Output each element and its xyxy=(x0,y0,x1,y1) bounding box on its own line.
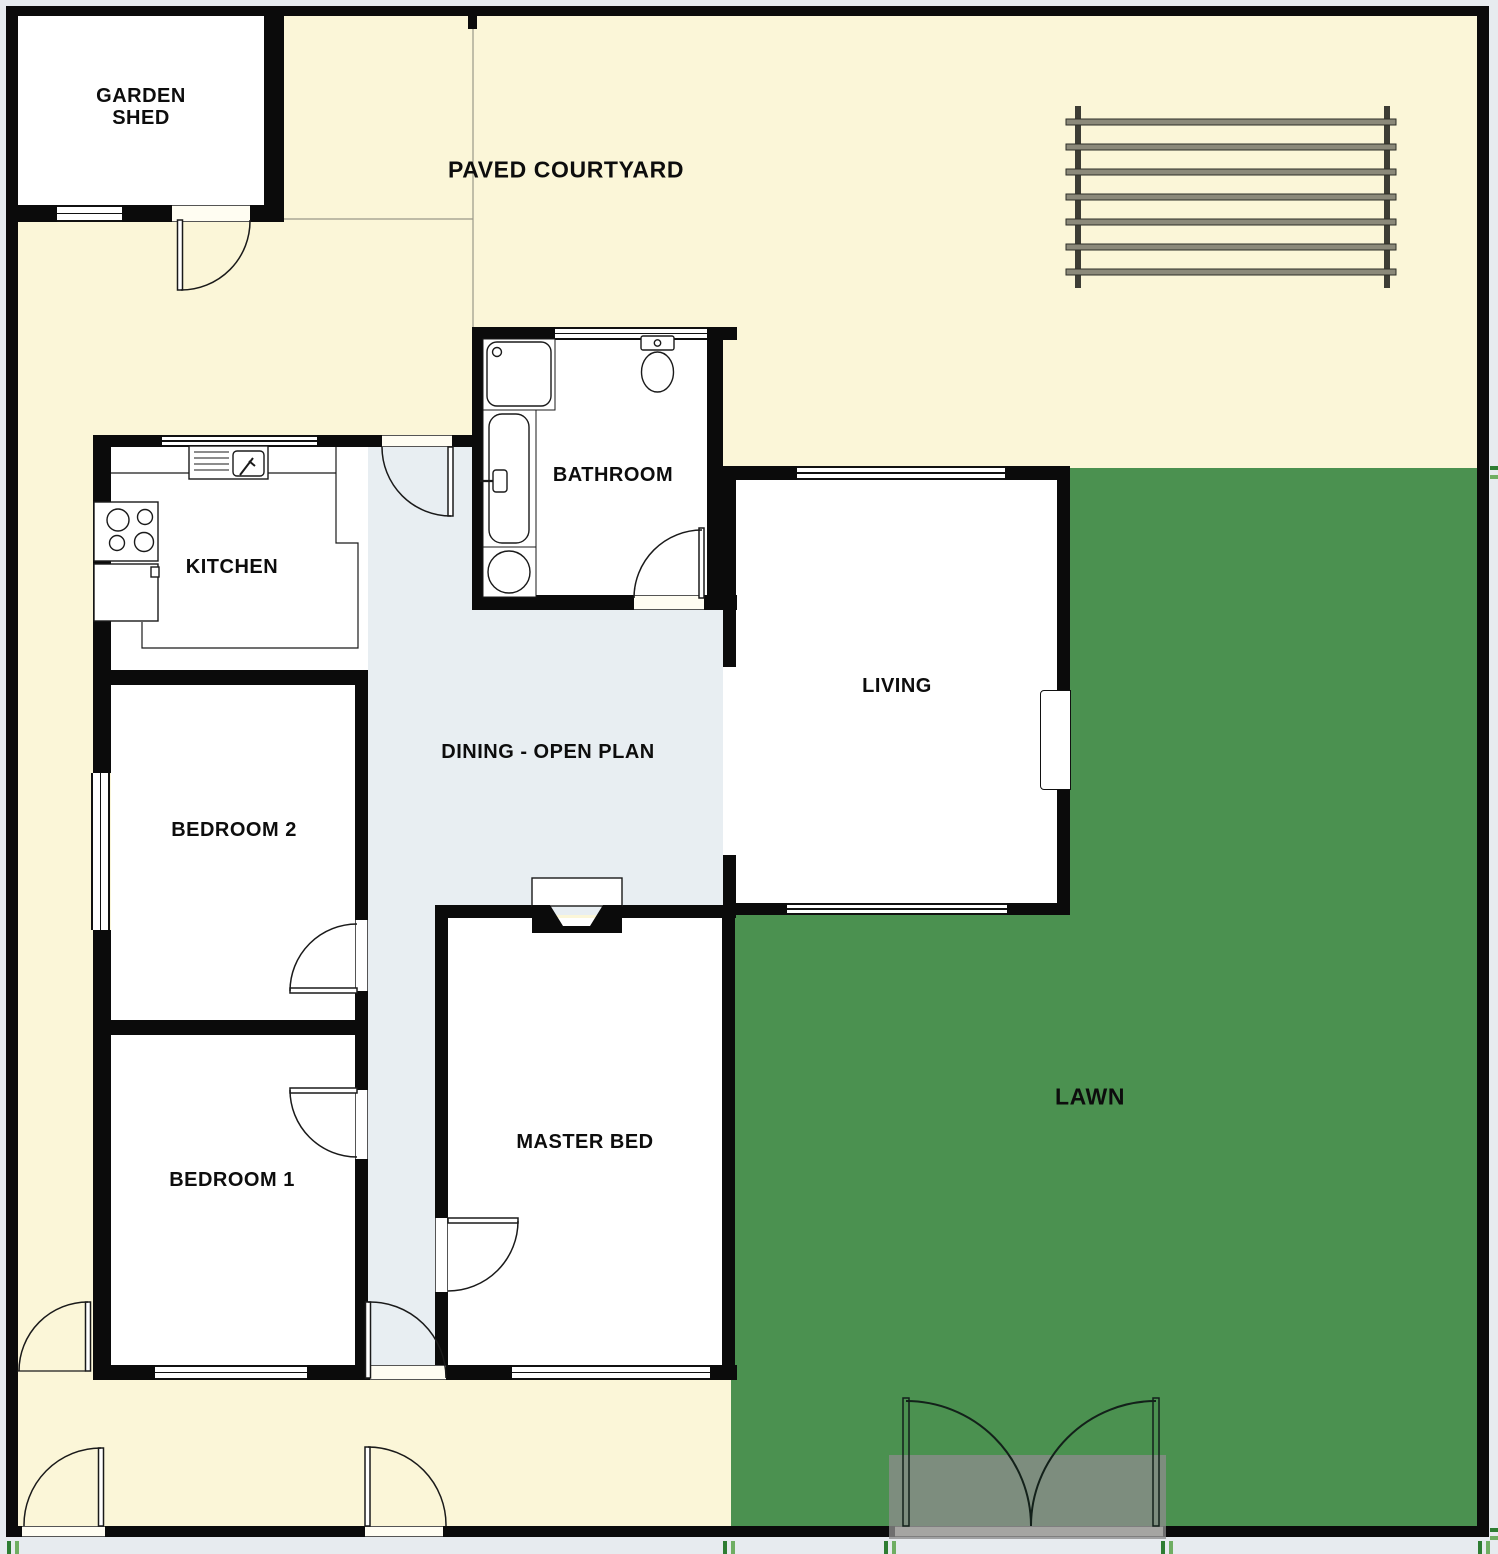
dining-floor xyxy=(368,447,472,610)
floor-plan: GARDEN SHED PAVED COURTYARD BATHROOM KIT… xyxy=(0,0,1498,1554)
bedroom2-wall-right xyxy=(355,685,368,920)
master-wall-top xyxy=(622,905,723,918)
border-wall-left xyxy=(6,6,18,1537)
kitchen-bedroom2-wall xyxy=(93,670,368,685)
dining-label: DINING - OPEN PLAN xyxy=(441,741,654,763)
master-wall-left xyxy=(435,905,448,1218)
courtyard-gate-gap xyxy=(365,1526,443,1537)
french-doors-gap xyxy=(895,1526,1163,1537)
master-bed-label: MASTER BED xyxy=(516,1131,653,1153)
shed-wall-bottom xyxy=(250,205,284,222)
bathroom-door-gap xyxy=(634,595,704,610)
bathroom-wall-top xyxy=(707,327,737,340)
hall-door-gap xyxy=(370,1365,446,1380)
house-wall-bottom xyxy=(710,1365,737,1380)
living-window-top xyxy=(797,466,1005,480)
dining-living-wall xyxy=(723,466,736,667)
border-wall-bottom xyxy=(105,1526,365,1537)
border-wall-bottom xyxy=(1163,1526,1489,1537)
house-wall-bottom xyxy=(307,1365,370,1380)
house-wall-bottom xyxy=(93,1365,155,1380)
bathroom-wall-top xyxy=(472,327,555,340)
courtyard-gate-gap xyxy=(22,1526,105,1537)
entry-door-gap xyxy=(382,435,452,447)
bedroom2-floor xyxy=(111,685,355,1020)
living-wall-top xyxy=(1005,466,1070,480)
living-window-bottom xyxy=(787,903,1007,915)
bedroom1-door-gap xyxy=(355,1090,368,1159)
bedroom2-wall-left xyxy=(93,685,111,773)
master-wall-right xyxy=(722,915,735,1380)
bedroom1-wall-top xyxy=(93,1020,368,1035)
master-window xyxy=(512,1365,710,1380)
shed-wall-right xyxy=(264,6,284,222)
shed-wall-bottom xyxy=(122,205,172,222)
hallway-floor xyxy=(368,915,437,1365)
border-wall-bottom xyxy=(443,1526,895,1537)
bedroom1-wall-left xyxy=(93,1035,111,1365)
master-wall-top xyxy=(435,905,532,918)
shed-window xyxy=(57,205,122,222)
living-window-right xyxy=(1040,690,1071,790)
bathroom-label: BATHROOM xyxy=(553,464,673,486)
living-label: LIVING xyxy=(862,675,932,697)
kitchen-wall-left xyxy=(93,435,111,670)
garden-shed-label: GARDEN SHED xyxy=(96,85,186,129)
bathroom-wall-bottom xyxy=(472,595,634,610)
bedroom1-label: BEDROOM 1 xyxy=(169,1169,295,1191)
bedroom2-wall-right xyxy=(355,991,368,1020)
bathroom-wall-left xyxy=(472,327,485,610)
border-wall-right xyxy=(1477,6,1489,1537)
master-wall-left xyxy=(435,1292,448,1365)
shed-wall-bottom xyxy=(6,205,57,222)
living-wall-bottom xyxy=(723,903,787,915)
paved-courtyard-label: PAVED COURTYARD xyxy=(448,157,684,182)
kitchen-label: KITCHEN xyxy=(186,556,278,578)
bedroom1-window xyxy=(155,1365,307,1380)
kitchen-wall-top xyxy=(452,435,472,447)
bedroom1-floor xyxy=(111,1035,355,1365)
bedroom2-label: BEDROOM 2 xyxy=(171,819,297,841)
shed-door-gap xyxy=(172,205,250,222)
bedroom2-wall-left xyxy=(93,930,111,1020)
kitchen-wall-top xyxy=(317,435,382,447)
bedroom2-door-gap xyxy=(355,920,368,991)
border-wall-top xyxy=(6,6,1489,16)
living-wall-bottom xyxy=(1007,903,1070,915)
bedroom2-window xyxy=(91,773,110,930)
house-wall-bottom xyxy=(446,1365,512,1380)
lawn-label: LAWN xyxy=(1055,1084,1125,1109)
bathroom-window xyxy=(555,327,707,340)
border-wall-bottom xyxy=(6,1526,22,1537)
kitchen-window xyxy=(162,435,317,447)
bathroom-wall-right xyxy=(707,340,723,595)
master-door-gap xyxy=(435,1218,448,1292)
living-wall-top xyxy=(736,466,797,480)
bedroom1-wall-right xyxy=(355,1035,368,1090)
bedroom1-wall-right xyxy=(355,1159,368,1365)
